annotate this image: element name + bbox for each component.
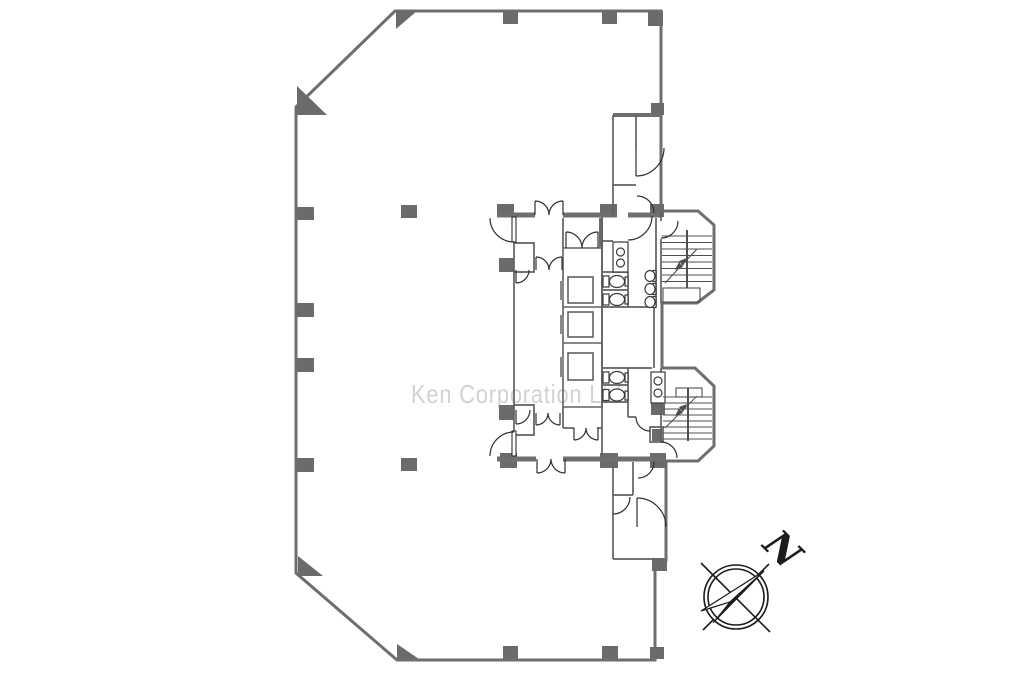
elevator-door-icon [560,357,564,377]
corner-column [396,11,417,29]
restroom-upper [603,242,656,308]
toilet-icon [603,389,625,401]
door-icon [516,410,530,424]
free-column [401,205,417,218]
compass-rose: N [701,520,812,632]
door-icon [628,216,652,240]
staircase-upper [662,230,712,302]
double-door-icon [535,201,563,215]
floor-plan-page: Ken Corporation Ltd. [0,0,1024,683]
door-icon [490,217,516,242]
floor-plan-drawing: Ken Corporation Ltd. [0,0,1024,683]
double-door-icon [536,257,562,270]
double-door-icon [536,413,560,425]
urinal-icon [645,297,656,308]
corner-column [298,556,323,576]
elevator-car [568,312,593,337]
elevator-car [568,353,593,380]
staircase-lower [663,388,712,441]
elevator-door-icon [560,281,564,300]
elevator-door-icon [560,315,564,334]
corner-column [397,644,419,659]
toilet-icon [603,276,625,288]
door-icon [636,417,650,431]
stair-landing [663,288,700,302]
structural-columns [297,11,667,659]
toilet-icon [603,294,625,306]
elevator-car [568,277,593,303]
door-icon [637,498,666,527]
urinal-icon [645,271,656,282]
urinal-icon [645,284,656,295]
free-column [401,458,417,471]
double-door-icon [537,459,565,473]
double-door-icon [574,428,598,440]
door-icon [490,431,516,456]
toilet-icon [603,372,625,384]
door-icon [613,497,630,514]
double-door-icon [566,232,598,248]
